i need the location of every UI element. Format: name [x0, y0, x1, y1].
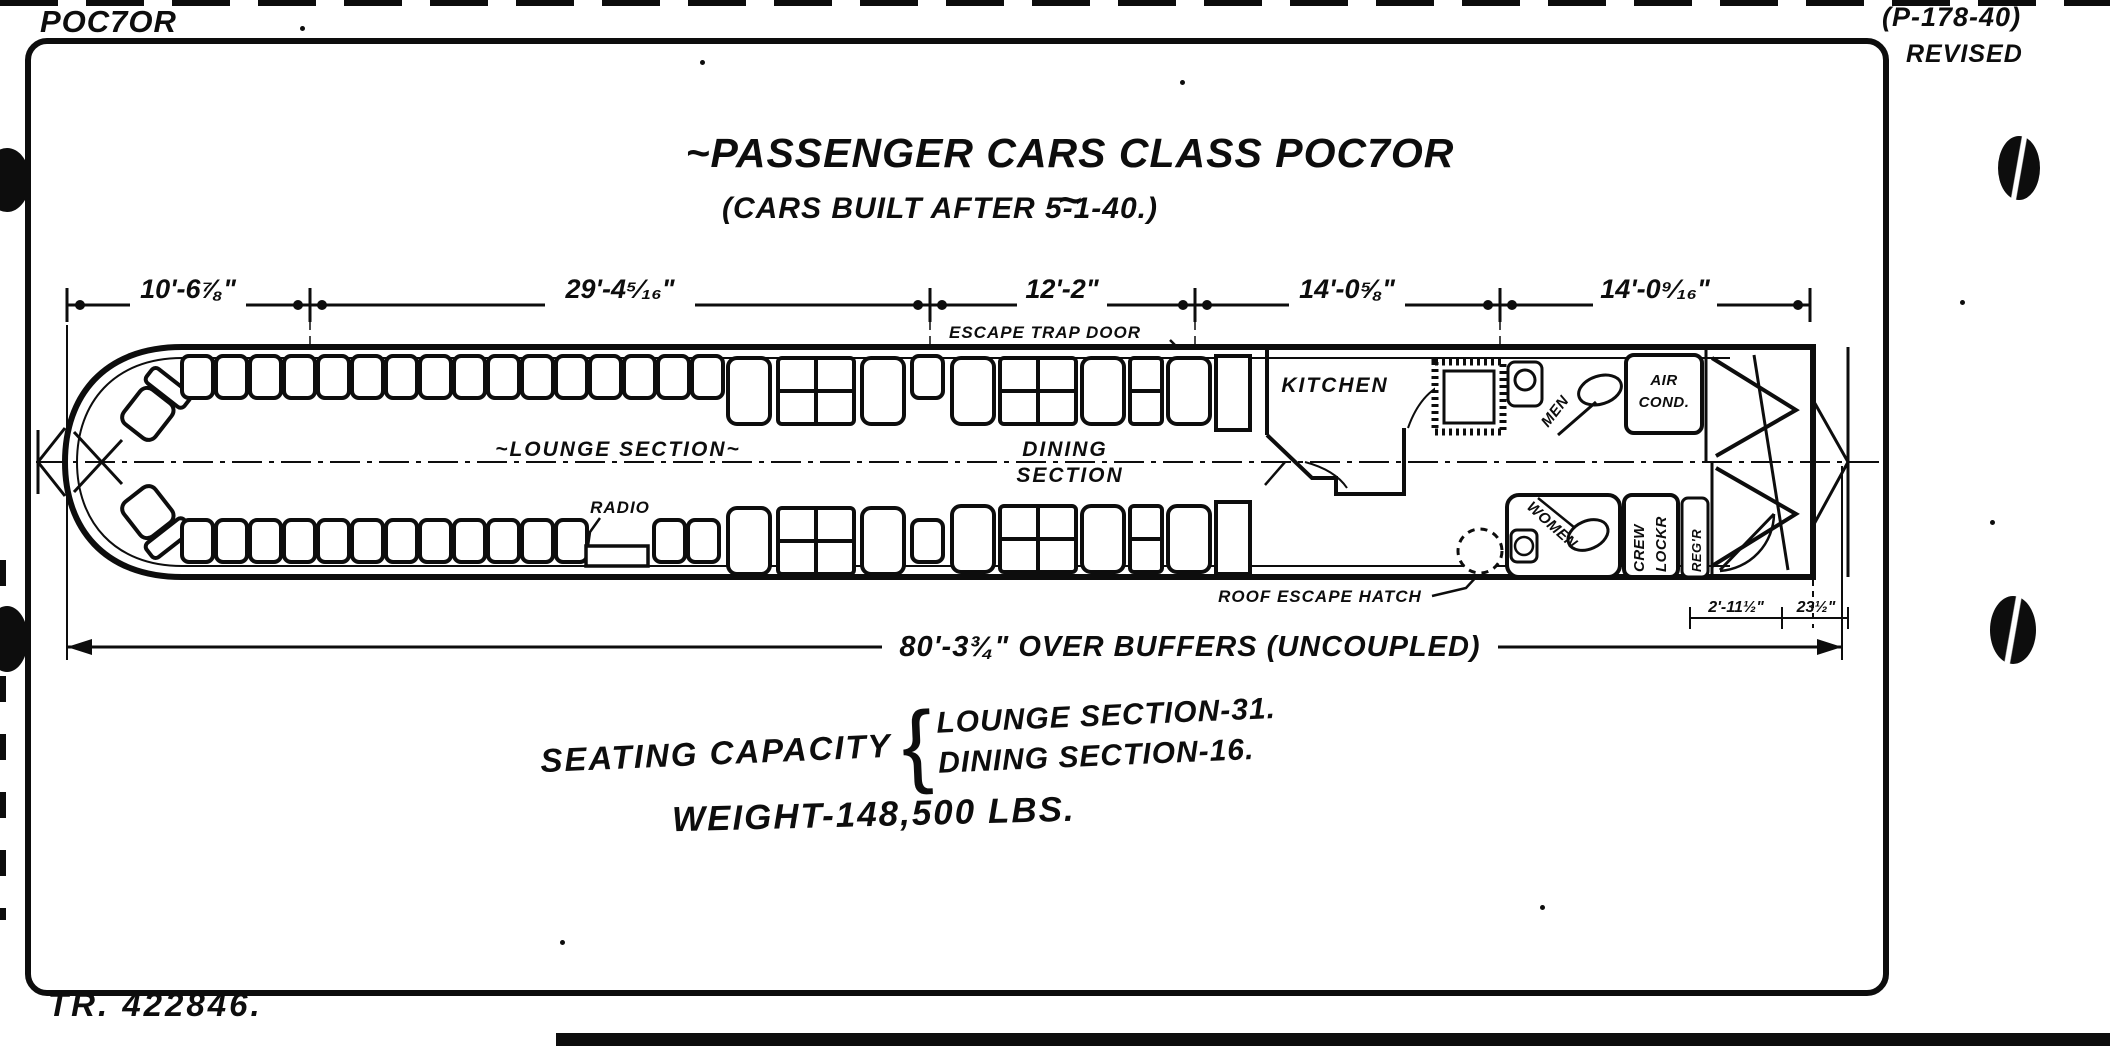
dim-segment-2: 29'-4⁵⁄₁₆"	[565, 274, 676, 304]
crew-locker-room: CREW LOCKR	[1624, 495, 1678, 577]
class-label-top-left: POC7OR	[40, 4, 177, 40]
air-cond-label-line2: COND.	[1639, 394, 1690, 411]
lounge-section-label: ~LOUNGE SECTION~	[495, 438, 741, 461]
tr-number: TR. 422846.	[48, 986, 263, 1024]
ink-blob-top-right	[1998, 136, 2040, 200]
kitchen-range	[1435, 362, 1503, 432]
radio-label: RADIO	[590, 498, 650, 517]
drawing-sheet: POC7OR (P-178-40) REVISED TR. 422846. ~P…	[0, 0, 2110, 1046]
radio-cabinet	[586, 546, 648, 566]
roof-escape-hatch	[1458, 529, 1502, 573]
kitchen-label: KITCHEN	[1281, 374, 1388, 397]
scan-speckle	[300, 26, 305, 31]
drawing-number: (P-178-40)	[1882, 2, 2021, 33]
crew-locker-label-line2: LOCKR	[1653, 516, 1670, 572]
scan-speckle	[1990, 520, 1995, 525]
dim-segment-1: 10'-6⅞"	[140, 274, 237, 304]
regr-label: REG'R	[1689, 529, 1704, 572]
revised-label: REVISED	[1906, 40, 2023, 69]
ink-blob-bottom-right	[1990, 596, 2036, 664]
roof-escape-hatch-label: ROOF ESCAPE HATCH	[1218, 587, 1422, 606]
escape-trap-door-label: ESCAPE TRAP DOOR	[949, 323, 1141, 342]
punch-hole-bottom	[0, 606, 28, 672]
seating-capacity-label: SEATING CAPACITY	[540, 727, 893, 780]
car-floor-plan: 10'-6⅞" 29'-4⁵⁄₁₆" 12'-2" 14'-0⅝" 14'-0⁹…	[30, 270, 1890, 700]
dining-section-label-line2: SECTION	[1016, 464, 1123, 487]
crew-locker-label-line1: CREW	[1631, 523, 1648, 572]
women-sink	[1515, 537, 1533, 555]
scan-speckle	[1960, 300, 1965, 305]
lounge-seats-top-row	[182, 356, 723, 398]
dim-buffer-extension: 23½"	[1796, 599, 1836, 616]
scan-bar-bottom	[556, 1033, 2110, 1046]
regr-room: REG'R	[1682, 498, 1708, 577]
dim-segment-4: 14'-0⅝"	[1299, 274, 1396, 304]
dim-segment-5: 14'-0⁹⁄₁₆"	[1600, 274, 1711, 304]
dim-segment-3: 12'-2"	[1025, 274, 1099, 304]
women-room: WOMEN	[1507, 495, 1620, 577]
men-sink	[1515, 370, 1535, 390]
dim-vestibule-width: 2'-11½"	[1707, 599, 1764, 616]
dimension-string-top	[67, 288, 1810, 346]
drawing-subtitle: (CARS BUILT AFTER 5-1-40.)	[640, 192, 1240, 226]
seating-capacity-brace: {	[900, 699, 936, 790]
dim-overall-length: 80'-3¾" OVER BUFFERS (UNCOUPLED)	[899, 631, 1480, 663]
dining-capacity-value: DINING SECTION-16.	[937, 732, 1278, 781]
air-cond-label-line1: AIR	[1649, 372, 1677, 389]
air-cond-room: AIR COND.	[1626, 355, 1702, 433]
dining-section-label-line1: DINING	[1022, 438, 1108, 461]
scan-edge-top	[0, 0, 2110, 6]
